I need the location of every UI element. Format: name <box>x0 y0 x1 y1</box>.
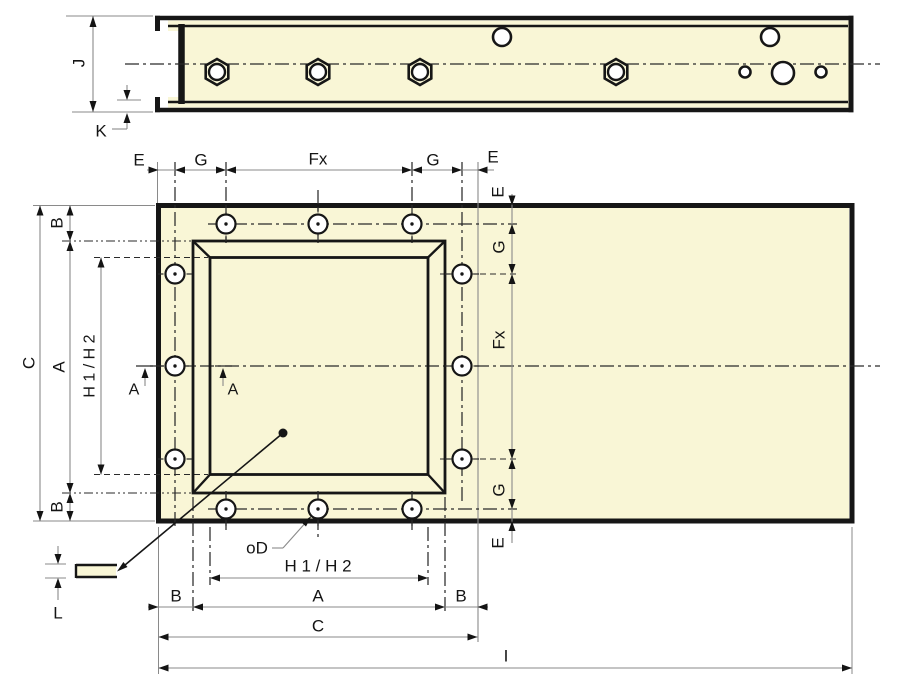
dim-label-h1h2-left: H 1 / H 2 <box>82 334 99 397</box>
dim-label-e-bottom-r: E <box>489 537 508 548</box>
dim-label-e-left: E <box>133 151 144 170</box>
dim-label-b-bottom: B <box>48 501 67 512</box>
dim-label-b-left-bottom: B <box>170 587 181 606</box>
side-view-rail: J K <box>66 16 880 141</box>
rail-hole <box>816 67 827 78</box>
dim-label-l: L <box>53 604 62 623</box>
dim-label-g-bottom-r: G <box>490 483 509 496</box>
leader-reference-dot <box>279 429 288 438</box>
dim-label-b-top: B <box>48 217 67 228</box>
dim-label-c-left: C <box>20 357 39 369</box>
dim-label-j: J <box>70 59 89 68</box>
rail-hole <box>772 62 794 84</box>
dim-label-b-right-bottom: B <box>455 587 466 606</box>
hex-nut <box>206 59 229 85</box>
dim-chain-top: E G Fx G E <box>133 148 498 204</box>
dim-K: K <box>95 85 141 141</box>
rail-flange-drawing: J K <box>0 0 906 700</box>
dim-label-hole-dia: oD <box>246 539 268 558</box>
rail-hole <box>761 28 779 46</box>
hex-nut <box>307 59 330 85</box>
dim-J: J <box>66 16 153 112</box>
technical-drawing-page: J K <box>0 0 906 700</box>
dim-label-g-top-r: G <box>490 240 509 253</box>
section-label-a-left: A <box>129 382 140 399</box>
dim-label-fx-r: Fx <box>490 330 509 349</box>
rail-hole <box>740 67 751 78</box>
dim-label-i: I <box>504 647 509 666</box>
hex-nut <box>605 59 628 85</box>
dim-label-h1h2-bottom: H 1 / H 2 <box>284 557 351 576</box>
dim-label-e-right: E <box>487 148 498 167</box>
dim-label-e-top-r: E <box>489 186 508 197</box>
plan-view-plate: E G Fx G E E G Fx G E <box>20 148 881 675</box>
dim-label-a-bottom: A <box>312 587 324 606</box>
dim-label-g-right: G <box>426 151 439 170</box>
dim-label-c-bottom: C <box>312 617 324 636</box>
plate-fill <box>161 208 849 519</box>
hex-nut <box>409 59 432 85</box>
dim-label-fx-top: Fx <box>309 150 328 169</box>
dim-label-g-left: G <box>194 151 207 170</box>
section-label-a-right: A <box>228 382 239 399</box>
dim-label-a-left: A <box>50 361 69 373</box>
dim-chain-left: C B A B H 1 / H 2 <box>20 206 156 522</box>
dim-label-k: K <box>95 122 107 141</box>
rail-hole <box>493 28 511 46</box>
